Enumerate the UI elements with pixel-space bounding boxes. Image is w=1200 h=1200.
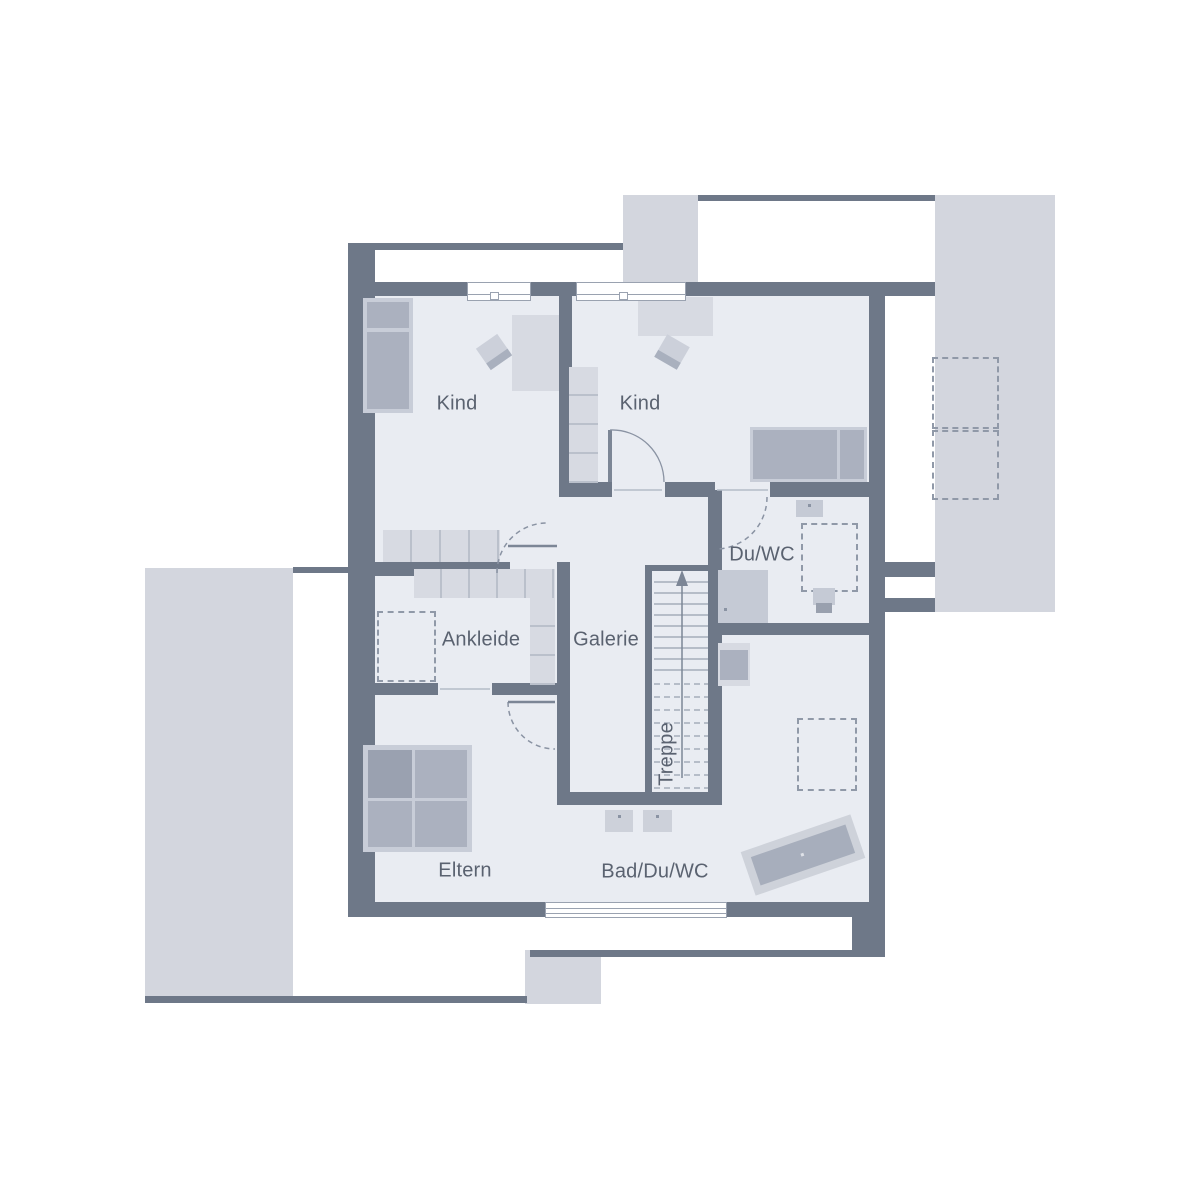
wall-stair-left	[645, 565, 652, 792]
window-glass-line	[546, 908, 726, 909]
window-mullion	[490, 292, 499, 300]
roof-block-bottom	[525, 950, 601, 1004]
skylight-outline-lower	[932, 430, 999, 500]
room-label-ankleide: Ankleide	[442, 629, 520, 652]
window-top-right	[576, 282, 686, 301]
window-mullion	[619, 292, 628, 300]
furniture-outline-ankleide	[377, 611, 436, 682]
edge-line-bottom-right	[530, 950, 883, 957]
sink-duwc	[796, 500, 823, 517]
bed-kind-left-body	[367, 332, 409, 409]
exterior-wall-bottom-b	[727, 902, 869, 917]
edge-line-left-connector	[293, 567, 348, 573]
edge-line-top-right	[698, 195, 935, 201]
wall-corridor-a	[559, 482, 612, 497]
room-label-kind-left: Kind	[437, 393, 478, 416]
exterior-wall-top-c	[686, 282, 935, 296]
toilet-tank-duwc	[816, 603, 832, 613]
roof-block-top	[623, 195, 698, 282]
bed-eltern-pillow-left	[368, 750, 412, 798]
shelf-kind-right	[569, 367, 598, 483]
bed-kind-left-pillow	[367, 302, 409, 328]
exterior-wall-bottom-a	[348, 902, 545, 917]
room-label-kind-right: Kind	[620, 393, 661, 416]
bed-eltern-pillow-right	[415, 750, 467, 798]
wall-galerie-left	[557, 562, 570, 792]
room-label-galerie: Galerie	[573, 629, 639, 652]
bed-eltern-frame	[363, 745, 472, 852]
wall-galerie-bottom	[557, 792, 722, 805]
window-bottom	[545, 902, 727, 918]
exterior-wall-right	[869, 282, 885, 957]
room-label-eltern: Eltern	[438, 860, 491, 883]
window-glass-line	[468, 294, 530, 295]
room-label-bad: Bad/Du/WC	[601, 861, 708, 884]
desk-kind-left	[512, 315, 559, 391]
window-top-left	[467, 282, 531, 301]
exterior-wall-top-a	[348, 282, 467, 296]
room-label-duwc: Du/WC	[729, 544, 794, 567]
faucet-dot-icon	[656, 815, 659, 818]
faucet-dot-icon	[808, 504, 811, 507]
exterior-stub-lower	[885, 598, 935, 612]
desk-kind-right	[638, 297, 713, 336]
wall-stair-top	[645, 565, 715, 571]
shower-outline-duwc	[801, 523, 858, 592]
sink-bad-1	[605, 810, 633, 832]
wall-duwc-bottom	[722, 623, 869, 635]
skylight-outline-upper	[932, 357, 999, 429]
wardrobe-ankleide-top	[414, 569, 555, 598]
exterior-wall-top-b	[531, 282, 576, 296]
window-glass-line	[577, 294, 685, 295]
edge-line-bottom-left	[145, 996, 527, 1003]
faucet-dot-icon	[618, 815, 621, 818]
roof-block-left	[145, 568, 293, 1002]
edge-line-top-left	[348, 243, 623, 250]
wardrobe-ankleide-side	[530, 598, 555, 685]
drain-dot-icon	[724, 608, 727, 611]
bed-kind-right-pillow	[840, 430, 864, 479]
sink-bad-2	[643, 810, 672, 832]
bed-eltern-blanket-right	[415, 801, 467, 847]
furniture-outline-bad	[797, 718, 857, 791]
door-leaf-kind-right	[608, 430, 612, 482]
basin-stair	[720, 650, 748, 680]
wardrobe-kind-left	[383, 530, 500, 562]
window-glass-line	[546, 913, 726, 914]
exterior-stub-upper	[885, 562, 935, 577]
wall-ankleide-bottom-left	[348, 683, 438, 695]
wall-corridor-c	[770, 482, 869, 497]
bed-kind-right-body	[753, 430, 837, 479]
shower-tray-duwc	[718, 570, 768, 623]
exterior-wall-bottom-right-piece	[852, 917, 883, 957]
bed-eltern-blanket-left	[368, 801, 412, 847]
floor-plan: Kind Kind Du/WC Ankleide Galerie Treppe …	[0, 0, 1200, 1200]
room-label-treppe: Treppe	[656, 722, 679, 786]
